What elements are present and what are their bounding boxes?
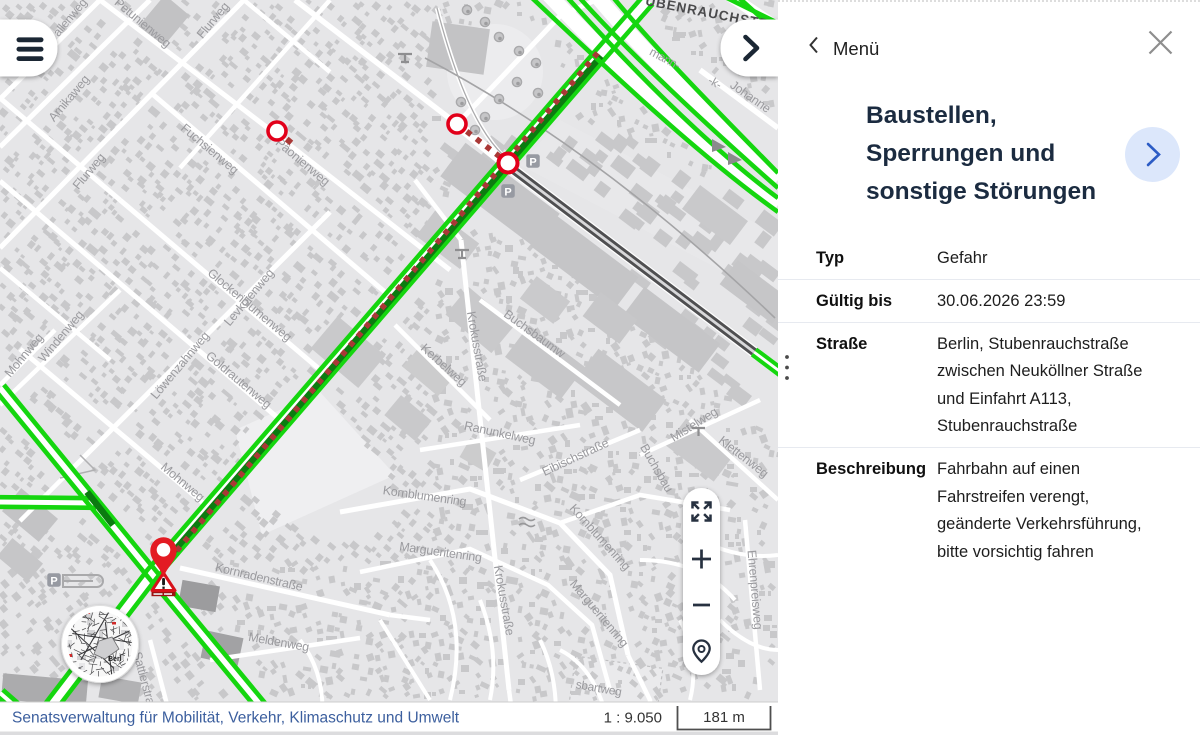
svg-text:1 : 9.050: 1 : 9.050 (604, 710, 662, 727)
svg-text:181 m: 181 m (703, 709, 745, 726)
svg-text:Senatsverwaltung für Mobilität: Senatsverwaltung für Mobilität, Verkehr,… (12, 710, 460, 727)
svg-text:Berl: Berl (108, 656, 122, 663)
svg-text:P: P (529, 156, 536, 168)
svg-text:P: P (504, 186, 511, 198)
svg-text:P: P (50, 575, 57, 587)
